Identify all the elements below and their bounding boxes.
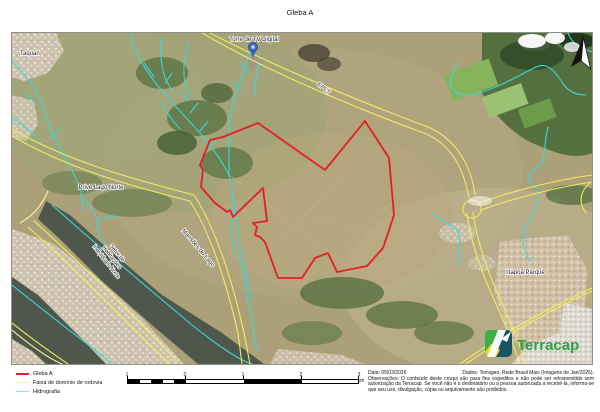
legend-label: Hidrografia (33, 389, 60, 395)
croqui-page: Gleba A (0, 0, 600, 412)
scale-bar-track (127, 379, 359, 384)
legend-item-faixa: Faixa de domínio de rodovia (16, 378, 102, 387)
label-prive-lago-norte: Privê Lago Norte (78, 185, 124, 191)
credits-block: Data: 05/03/2026 Dados: Terrageo, Rede B… (368, 371, 594, 394)
satellite-map: Taquari Torre de TV Digital EPCT Privê L… (12, 33, 592, 364)
faixa-line-swatch (16, 382, 29, 384)
scale-bar: 1 0 1 2 3 km (127, 372, 360, 388)
map-canvas: Taquari Torre de TV Digital EPCT Privê L… (11, 32, 593, 365)
scale-segment (128, 380, 140, 383)
scale-segment (174, 380, 186, 383)
hidrografia-line-swatch (16, 391, 29, 393)
terracap-logo-text: Terracap (517, 337, 579, 354)
scale-segment (151, 380, 163, 383)
gleba-line-swatch (16, 373, 29, 375)
legend-item-hidrografia: Hidrografia (16, 387, 102, 396)
observations-text: Observações: O conteúdo deste croqui são… (368, 377, 594, 394)
scale-segment (244, 380, 302, 383)
legend-label: Gleba A (33, 371, 53, 377)
label-taquari: Taquari (20, 51, 40, 57)
page-title: Gleba A (0, 8, 600, 17)
legend-label: Faixa de domínio de rodovia (33, 380, 102, 386)
label-itapoa-parque: Itapoã Parque (507, 270, 545, 276)
legend: Gleba A Faixa de domínio de rodovia Hidr… (16, 369, 102, 396)
legend-item-gleba: Gleba A (16, 369, 102, 378)
label-torre-tv: Torre de TV Digital (229, 37, 279, 43)
